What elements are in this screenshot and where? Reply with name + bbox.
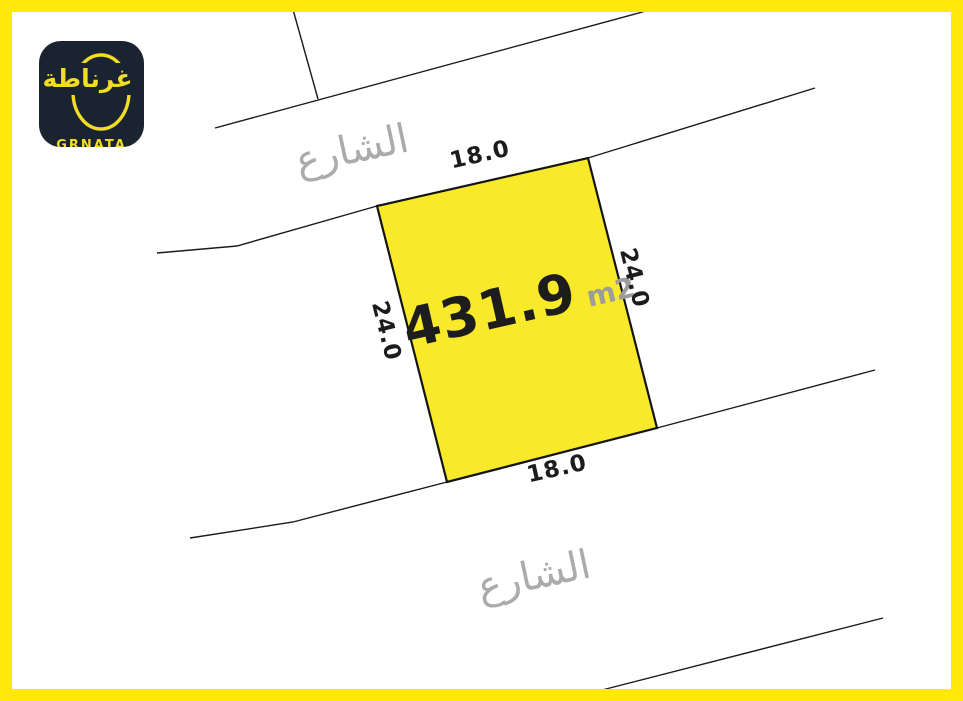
top-street-upper-line <box>215 11 646 128</box>
top-boundary-connector-line <box>292 6 318 99</box>
logo-latin-wordmark: GRNATA <box>39 137 144 147</box>
logo-arabic-wordmark: غرناطة <box>39 63 136 95</box>
bottom-street-upper-line-left <box>190 482 447 538</box>
top-street-lower-line-left <box>157 206 377 253</box>
grnata-logo: غرناطة GRNATA <box>39 41 144 147</box>
top-street-lower-line-right <box>588 88 815 158</box>
bottom-street-upper-line-right <box>657 370 875 428</box>
bottom-street-lower-line <box>602 618 883 690</box>
plot-map-page: 431.9 m2 18.0 24.0 18.0 24.0 الشارع الشا… <box>0 0 963 701</box>
